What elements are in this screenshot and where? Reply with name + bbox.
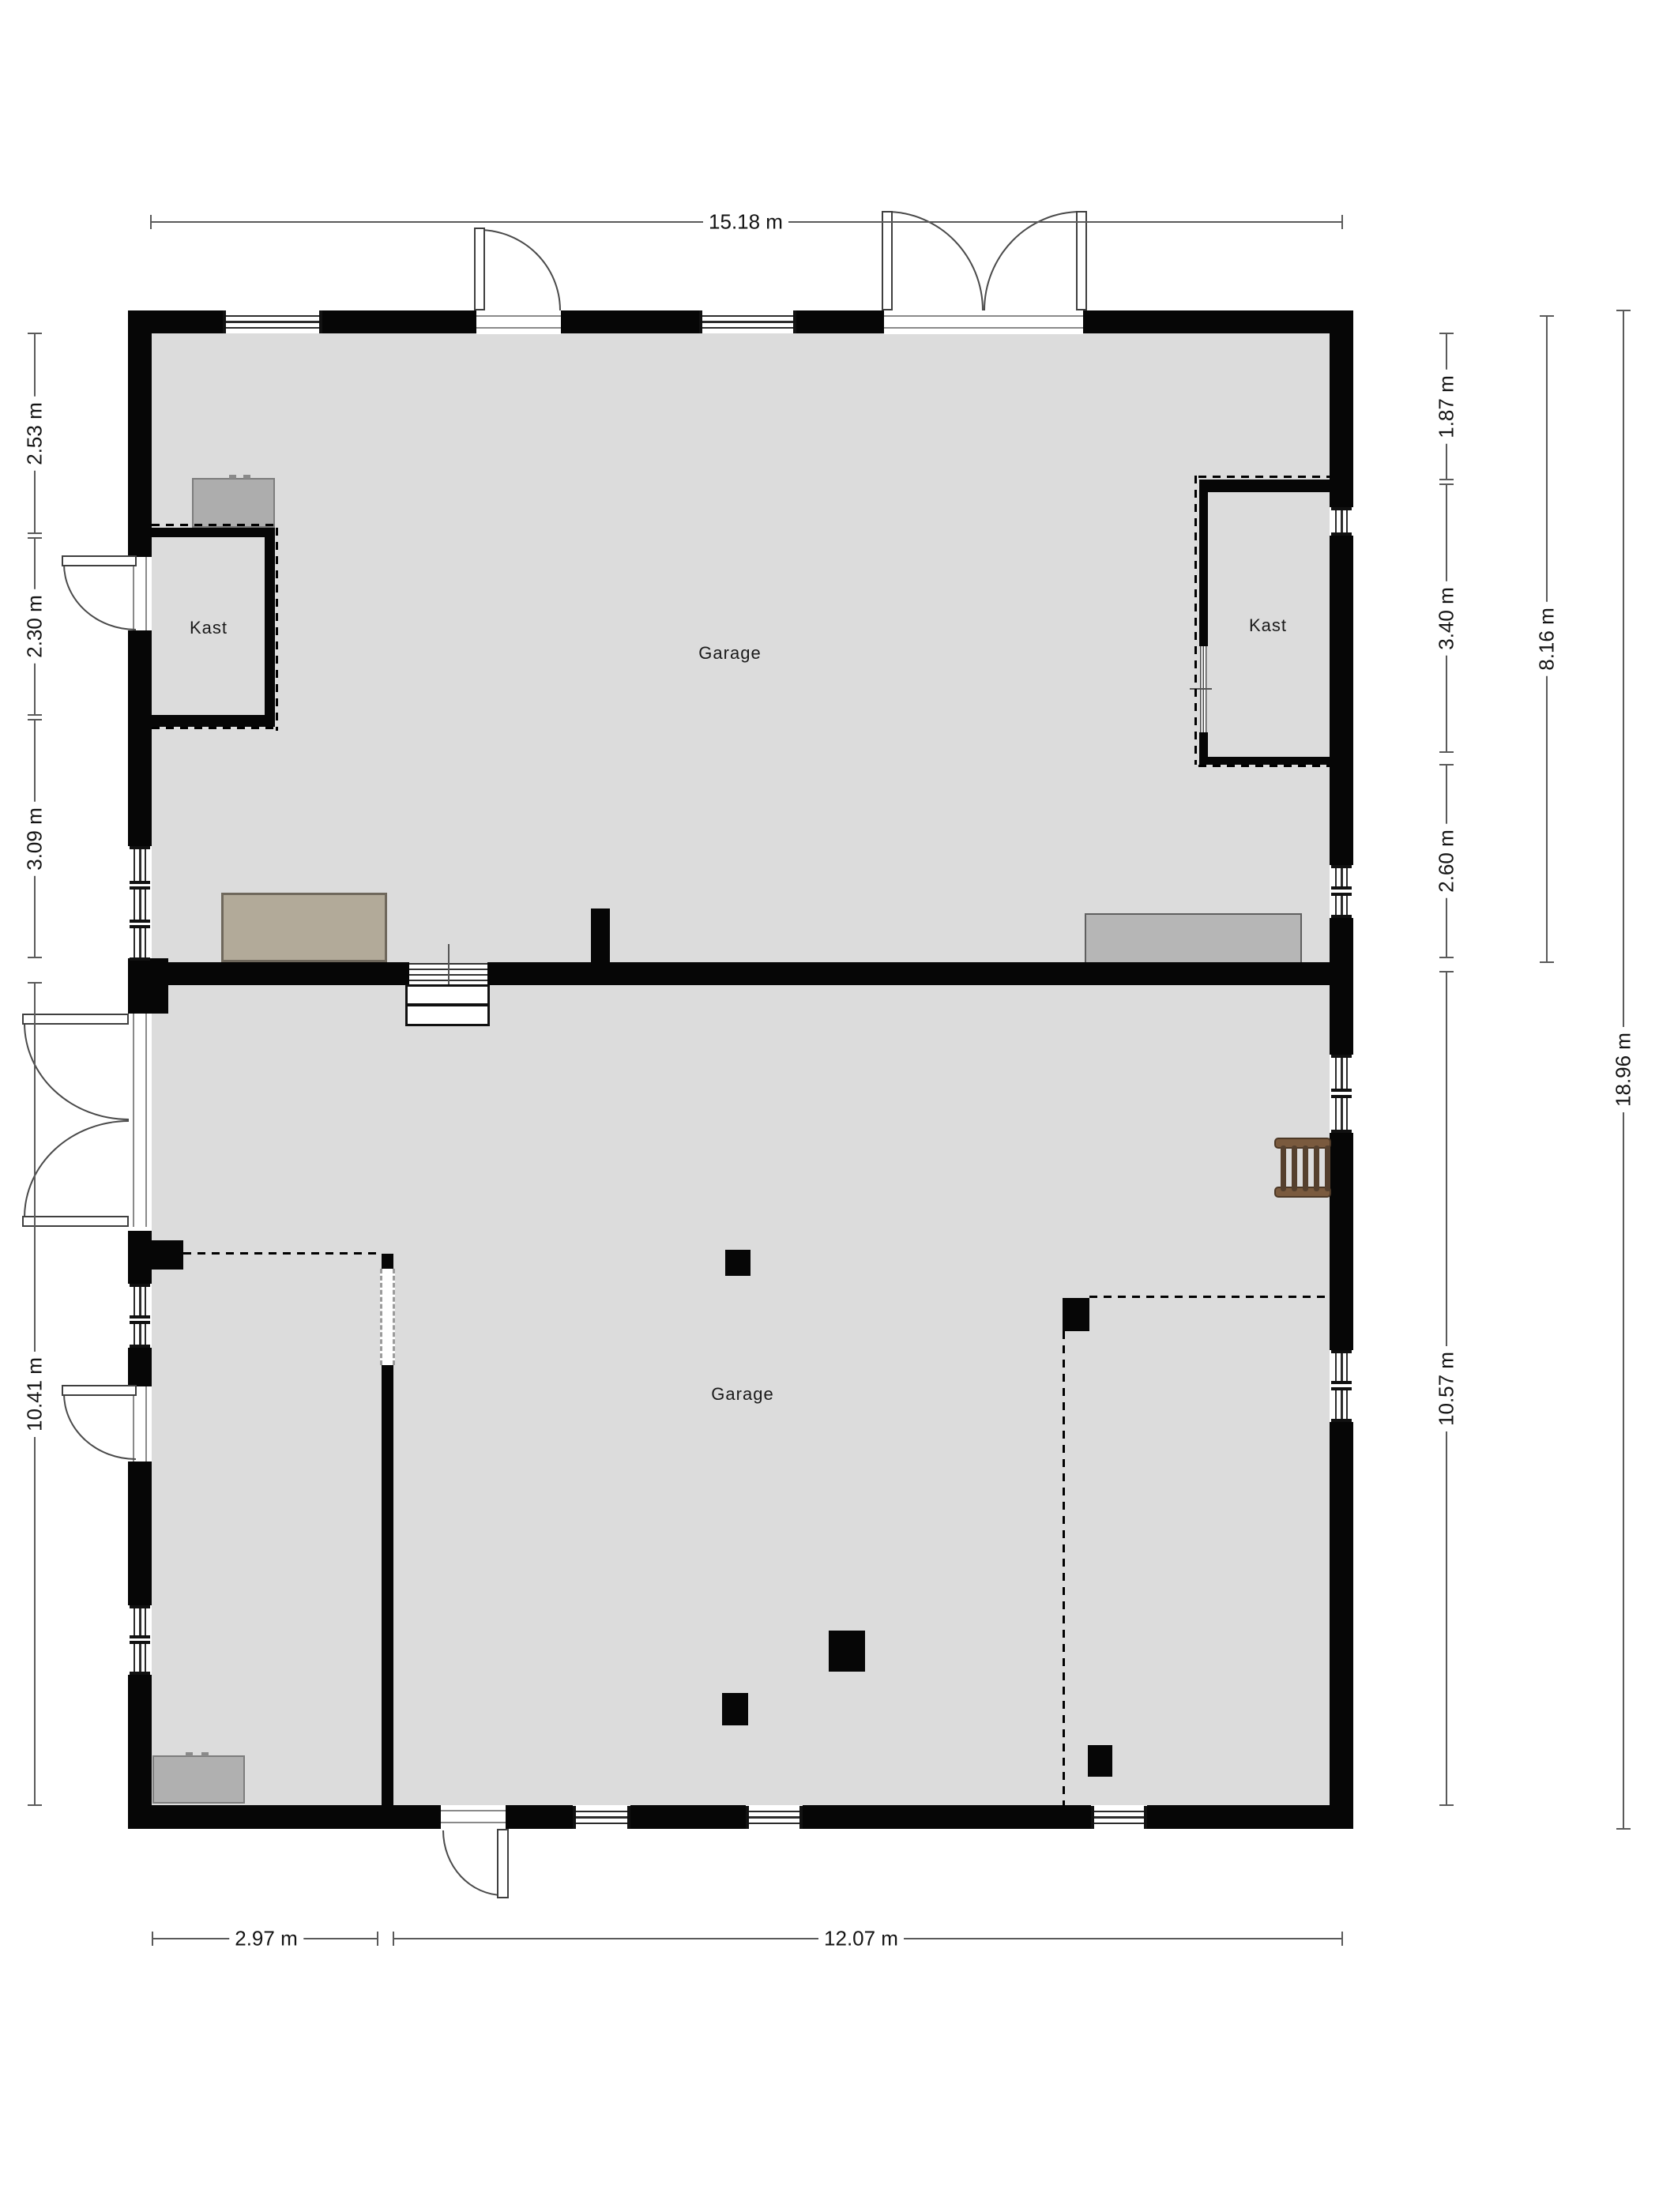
door-opening bbox=[441, 1805, 506, 1829]
floorplan-canvas: Garage Garage Kast Kast 15.18 m 2.53 m 2… bbox=[0, 0, 1659, 2212]
dim-tick bbox=[1540, 315, 1554, 317]
door-swing-arc bbox=[886, 211, 984, 310]
window bbox=[699, 310, 796, 333]
window bbox=[223, 310, 322, 333]
door-leaf bbox=[22, 1014, 129, 1025]
wall-bottom bbox=[803, 1805, 1091, 1829]
room-label-kast-right: Kast bbox=[1249, 615, 1287, 636]
window bbox=[1331, 893, 1352, 918]
dim-tick bbox=[1439, 333, 1454, 334]
ladder-rung bbox=[1281, 1145, 1286, 1191]
kast-right-wall-top bbox=[1199, 480, 1330, 492]
garage-floor bbox=[152, 333, 1330, 1805]
window bbox=[1331, 1095, 1352, 1133]
door-opening bbox=[884, 310, 1083, 334]
dim-tick bbox=[28, 957, 42, 958]
window bbox=[130, 1641, 150, 1675]
door-leaf bbox=[62, 1385, 137, 1396]
dim-tick bbox=[28, 532, 42, 534]
window bbox=[130, 846, 150, 884]
window bbox=[1331, 1350, 1352, 1384]
wall-right bbox=[1330, 918, 1353, 1055]
room-label-garage-lower: Garage bbox=[711, 1384, 773, 1405]
wall-left bbox=[128, 1348, 152, 1386]
kast-right-door-tick bbox=[1190, 688, 1212, 690]
window bbox=[130, 886, 150, 923]
dim-label-right-upper-total: 8.16 m bbox=[1533, 602, 1562, 676]
door-swing-arc bbox=[63, 1394, 136, 1460]
kast-left-wall-right bbox=[265, 537, 275, 715]
kast-right-wall-left bbox=[1199, 480, 1208, 646]
partition-wall bbox=[382, 1365, 393, 1805]
wall-right bbox=[1330, 536, 1353, 865]
kast-right-wall-left bbox=[1199, 732, 1208, 757]
door-leaf bbox=[474, 228, 485, 310]
wall-middle bbox=[487, 962, 1330, 985]
dim-label-right-total: 18.96 m bbox=[1609, 1027, 1638, 1112]
window bbox=[130, 1284, 150, 1319]
dim-tick bbox=[1616, 310, 1631, 311]
door-swing-arc bbox=[63, 564, 136, 630]
dim-label-right-3: 2.60 m bbox=[1432, 824, 1461, 898]
window bbox=[1091, 1806, 1147, 1829]
window bbox=[1331, 865, 1352, 890]
ladder-rung bbox=[1303, 1145, 1308, 1191]
kast-right-wall-bottom bbox=[1199, 757, 1330, 765]
room-label-kast-left: Kast bbox=[190, 618, 228, 638]
door-swing-arc bbox=[24, 1023, 129, 1120]
window bbox=[746, 1806, 803, 1829]
ladder bbox=[1274, 1138, 1331, 1199]
dim-tick bbox=[1341, 1932, 1343, 1946]
door-opening bbox=[476, 310, 561, 334]
dim-tick bbox=[28, 982, 42, 984]
ladder-rung bbox=[1292, 1145, 1297, 1191]
wall-right bbox=[1330, 1422, 1353, 1829]
wall-left-stub bbox=[152, 1240, 183, 1270]
wall-top bbox=[796, 310, 884, 333]
wall-top bbox=[1083, 310, 1353, 333]
dim-tick bbox=[1439, 971, 1454, 972]
door-swing-arc bbox=[479, 229, 561, 310]
dim-label-right-1: 1.87 m bbox=[1432, 370, 1461, 444]
wall-left bbox=[128, 1675, 152, 1829]
door-leaf bbox=[62, 555, 137, 566]
dim-tick bbox=[1341, 215, 1343, 229]
cabinet-bottom-left bbox=[152, 1755, 245, 1804]
dim-tick bbox=[377, 1932, 378, 1946]
stair-center-line bbox=[448, 944, 450, 984]
ladder-rung bbox=[1314, 1145, 1319, 1191]
ladder-rung bbox=[1325, 1145, 1330, 1191]
dim-tick bbox=[1616, 1828, 1631, 1830]
wall-top bbox=[561, 310, 699, 333]
door-swing-arc bbox=[984, 211, 1081, 310]
column bbox=[725, 1250, 750, 1276]
cabinet-knob bbox=[243, 475, 250, 479]
dim-tick bbox=[28, 537, 42, 539]
dim-tick bbox=[1439, 483, 1454, 485]
dim-label-left-3: 3.09 m bbox=[21, 802, 50, 876]
dim-label-bottom-1: 2.97 m bbox=[229, 1924, 303, 1954]
kast-left-wall-bottom bbox=[152, 715, 275, 727]
dim-tick bbox=[28, 719, 42, 720]
door-opening bbox=[128, 1014, 152, 1227]
dim-tick bbox=[28, 1804, 42, 1806]
door-leaf bbox=[1076, 211, 1087, 310]
wall-bottom bbox=[506, 1805, 573, 1829]
dim-label-left-2: 2.30 m bbox=[21, 589, 50, 664]
window bbox=[1331, 507, 1352, 536]
dim-tick bbox=[152, 1932, 153, 1946]
window bbox=[130, 1321, 150, 1348]
column bbox=[1088, 1745, 1112, 1777]
dim-tick bbox=[1439, 764, 1454, 766]
dim-tick bbox=[150, 215, 152, 229]
dim-tick bbox=[1439, 1804, 1454, 1806]
column bbox=[722, 1693, 748, 1725]
dim-label-right-2: 3.40 m bbox=[1432, 581, 1461, 656]
cabinet-top-left bbox=[192, 478, 275, 528]
kast-left-dash-right bbox=[276, 528, 278, 731]
window bbox=[130, 925, 150, 961]
wall-top bbox=[322, 310, 476, 333]
dim-tick bbox=[1540, 961, 1554, 963]
wall-left bbox=[128, 630, 152, 846]
wall-left bbox=[128, 1231, 152, 1284]
wall-right bbox=[1330, 310, 1353, 507]
door-leaf bbox=[22, 1216, 129, 1227]
kast-right-dash-top bbox=[1198, 476, 1330, 478]
wall-middle-stub bbox=[591, 908, 610, 962]
window bbox=[1331, 1055, 1352, 1092]
dim-tick bbox=[28, 333, 42, 334]
partition-dash-line bbox=[183, 1252, 382, 1255]
window bbox=[573, 1806, 630, 1829]
room-label-garage-upper: Garage bbox=[698, 643, 761, 664]
storage-dash-top bbox=[1089, 1296, 1330, 1298]
kast-left-dash-top bbox=[152, 524, 275, 526]
storage-dash-left bbox=[1063, 1331, 1065, 1805]
partition-future-opening bbox=[380, 1269, 395, 1365]
door-swing-arc bbox=[442, 1830, 503, 1896]
dim-tick bbox=[28, 714, 42, 716]
dim-tick bbox=[1439, 957, 1454, 958]
wall-left bbox=[128, 310, 152, 557]
dim-label-top-width: 15.18 m bbox=[703, 208, 788, 237]
storage-corner-post bbox=[1063, 1298, 1089, 1331]
step bbox=[405, 984, 490, 1006]
door-leaf bbox=[882, 211, 893, 310]
step bbox=[405, 1004, 490, 1026]
dim-label-right-4: 10.57 m bbox=[1432, 1346, 1461, 1431]
dim-label-left-1: 2.53 m bbox=[21, 397, 50, 471]
wall-bottom bbox=[128, 1805, 441, 1829]
dim-tick bbox=[393, 1932, 394, 1946]
wall-left bbox=[128, 1461, 152, 1605]
dim-tick bbox=[1439, 479, 1454, 480]
workbench-right bbox=[1085, 913, 1302, 968]
wall-bottom bbox=[630, 1805, 746, 1829]
door-swing-arc bbox=[24, 1120, 129, 1217]
window bbox=[130, 1605, 150, 1638]
door-leaf bbox=[497, 1829, 509, 1898]
kast-right-dash-left bbox=[1194, 476, 1197, 765]
kast-right-dash-bottom bbox=[1198, 765, 1330, 767]
cabinet-knob bbox=[186, 1752, 193, 1756]
dim-tick bbox=[1439, 751, 1454, 753]
dim-label-left-4: 10.41 m bbox=[21, 1352, 50, 1437]
partition-corner-post bbox=[382, 1254, 393, 1269]
wall-middle bbox=[152, 962, 409, 985]
kast-left-dash-bottom bbox=[152, 727, 278, 729]
cabinet-knob bbox=[201, 1752, 209, 1756]
workbench-left bbox=[221, 893, 387, 962]
column bbox=[829, 1631, 865, 1672]
wall-bottom bbox=[1147, 1805, 1353, 1829]
kast-left-wall-top bbox=[152, 528, 275, 537]
window bbox=[1331, 1387, 1352, 1422]
cabinet-knob bbox=[229, 475, 236, 479]
dim-label-bottom-2: 12.07 m bbox=[818, 1924, 904, 1954]
wall-right bbox=[1330, 1133, 1353, 1350]
